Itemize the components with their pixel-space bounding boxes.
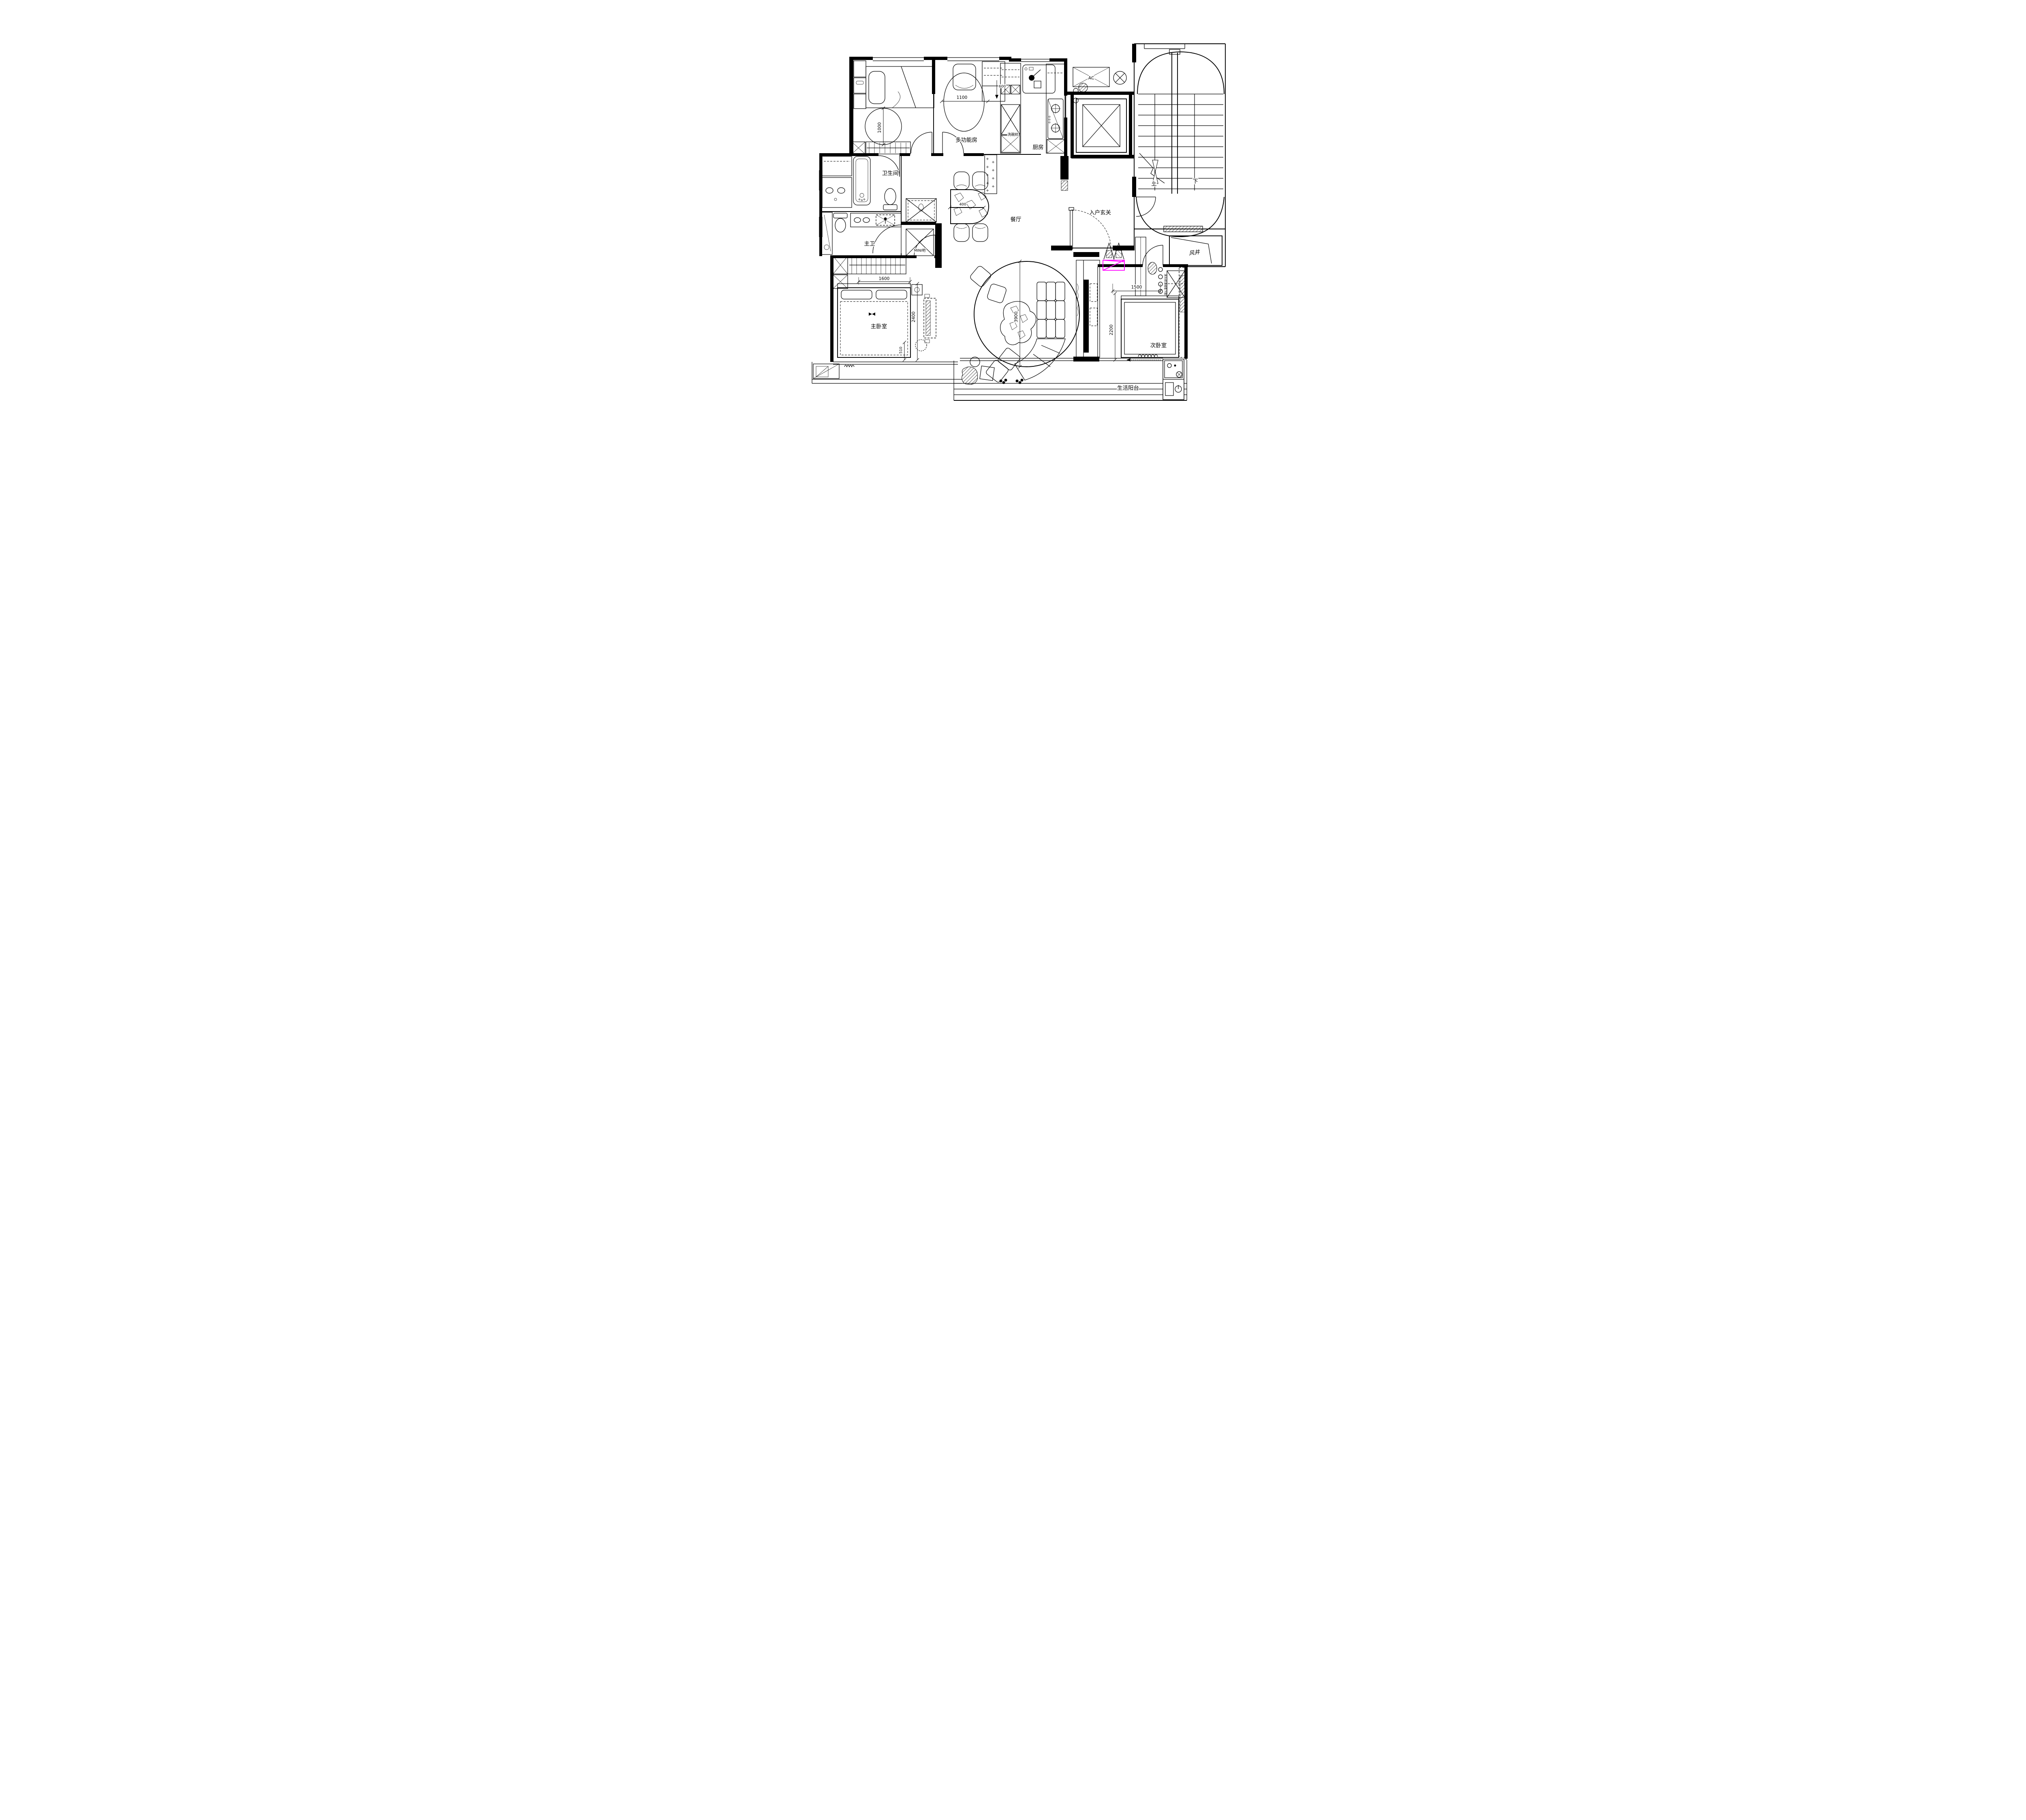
stair-break-line — [1139, 153, 1165, 184]
living-balcony — [954, 358, 1187, 400]
label-wind-shaft: 风井 — [1188, 249, 1201, 257]
dim-510 — [903, 341, 906, 361]
nightstand-master — [912, 284, 922, 295]
dim-1000 — [882, 107, 885, 146]
dim-3900 — [1018, 260, 1022, 368]
laundry-unit — [1163, 359, 1184, 400]
floor-plan-canvas: 多功能房 洗碗机 厨房 AC 上 下 卫生间 主卫 MINI吧 餐厅 入户玄关 … — [699, 0, 1327, 445]
dim-text-1000: 1000 — [877, 122, 882, 133]
label-master-bath: 主卫 — [864, 241, 875, 247]
plant-sw — [962, 367, 978, 385]
room-kitchen — [1000, 63, 1065, 153]
sofa-modular — [985, 282, 1065, 383]
door-master-bath — [873, 225, 901, 253]
multi-cabinets — [982, 62, 1005, 101]
room-bathroom — [822, 156, 900, 210]
armchairs — [969, 265, 1007, 304]
dining-area — [951, 172, 989, 242]
label-mini-bar: MINI吧 — [914, 248, 926, 253]
toilet-2 — [833, 213, 847, 232]
label-kitchen: 厨房 — [1033, 144, 1044, 151]
label-master-bedroom: 主卧室 — [871, 323, 887, 330]
shower-2 — [822, 212, 832, 255]
label-second-bedroom: 次卧室 — [1150, 342, 1167, 349]
vanity-1 — [822, 156, 852, 207]
vanity-2 — [851, 213, 901, 227]
ac-room — [1073, 67, 1126, 103]
staircase — [1136, 49, 1224, 237]
dim-2200 — [1113, 292, 1117, 361]
door-bedroom-tl — [911, 132, 932, 153]
label-bathroom: 卫生间 — [882, 170, 899, 177]
dim-600 — [995, 80, 998, 99]
dim-text-1600: 1600 — [879, 276, 890, 281]
dim-text-600: 600 — [999, 85, 1006, 89]
living-room — [962, 260, 1100, 385]
single-bed — [866, 66, 934, 108]
kitchen-stove-counter — [1046, 64, 1065, 153]
tv-console — [1076, 260, 1100, 357]
window-foyer-hatched — [1164, 226, 1203, 232]
planter-box — [813, 364, 839, 379]
label-dishwasher: 洗碗机 — [1007, 132, 1018, 137]
dim-text-400: 400 — [959, 203, 966, 207]
coffee-table — [1000, 302, 1036, 345]
window-multi-top — [947, 58, 999, 61]
label-foyer: 入户玄关 — [1089, 209, 1111, 216]
dining-table — [951, 190, 989, 224]
dim-400 — [948, 206, 985, 209]
dim-text-510: 510 — [899, 346, 903, 353]
label-stairs-down: 下 — [1193, 178, 1198, 185]
dresser-master — [924, 294, 936, 343]
window-kitchen-top — [1021, 59, 1049, 62]
windows — [819, 44, 1203, 237]
dim-2400 — [916, 282, 919, 361]
label-multi-function: 多功能房 — [955, 137, 977, 143]
door-master-bedroom — [914, 235, 935, 256]
kitchen-sink-counter — [1023, 65, 1055, 93]
nightstand-shelf — [854, 61, 866, 109]
kitchen-tall-cabinets — [1000, 63, 1021, 153]
dim-text-1500: 1500 — [1131, 285, 1142, 290]
text-labels: 多功能房 洗碗机 厨房 AC 上 下 卫生间 主卫 MINI吧 餐厅 入户玄关 … — [864, 76, 1201, 391]
master-balcony — [812, 362, 962, 383]
corridor-console — [906, 199, 936, 222]
dim-text-1100: 1100 — [957, 95, 968, 100]
room-top-left-bedroom — [852, 61, 934, 154]
label-ac: AC — [1088, 76, 1094, 81]
wardrobe-top-left — [852, 142, 910, 154]
toilet-1 — [883, 188, 897, 210]
fan-symbol — [1113, 71, 1126, 84]
dim-text-2400: 2400 — [911, 312, 916, 323]
elevator — [1076, 99, 1126, 156]
dim-text-2200: 2200 — [1109, 325, 1114, 336]
stair-handrail — [1169, 49, 1180, 194]
window-bedroom-top — [873, 58, 924, 61]
window-stair-top — [1144, 44, 1185, 49]
curtain-symbol — [1126, 355, 1160, 362]
note-bedside-cabinet: 床头柜详细看下图 — [1164, 274, 1167, 295]
label-dining: 餐厅 — [1011, 216, 1022, 223]
dining-chairs — [954, 172, 988, 242]
room-master-bath — [822, 212, 901, 255]
dim-text-3900: 3900 — [1014, 312, 1019, 323]
room-master-bedroom — [833, 235, 936, 357]
bathtub — [853, 156, 870, 205]
master-bed — [838, 284, 910, 357]
floor-plan-drawing: 多功能房 洗碗机 厨房 AC 上 下 卫生间 主卫 MINI吧 餐厅 入户玄关 … — [699, 0, 1327, 445]
label-stairs-up: 上 — [1151, 181, 1157, 187]
label-balcony: 生活阳台 — [1117, 385, 1139, 391]
